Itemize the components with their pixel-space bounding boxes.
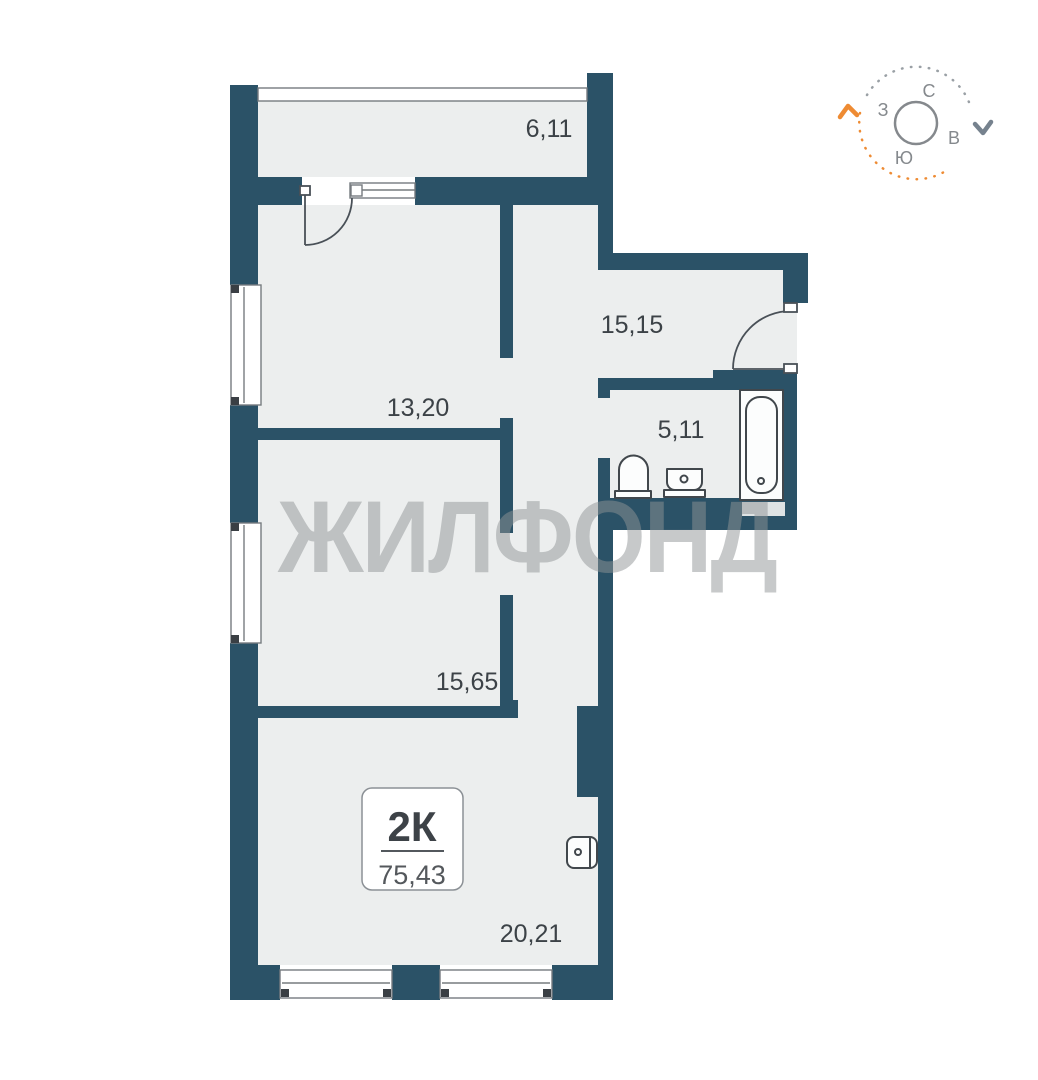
wall-divider-lower [500, 595, 513, 718]
rotate-clockwise-arrow-icon [975, 122, 991, 133]
wall-divider-upper [500, 205, 513, 358]
compass-east-label: В [948, 128, 960, 148]
compass-arc-orange [859, 113, 944, 179]
wall-top-right-segment [415, 177, 613, 205]
compass-north-label: С [923, 81, 936, 101]
rotate-counterclockwise-arrow-icon [840, 106, 857, 117]
entry-door-hinge-bottom [784, 364, 797, 373]
compass-circle [895, 102, 937, 144]
wall-top-left-segment [230, 177, 302, 205]
left-window-1 [231, 285, 261, 405]
compass-west-label: З [878, 100, 889, 120]
unit-badge: 2К 75,43 [362, 788, 463, 890]
room-label-room-2: 15,65 [436, 668, 499, 696]
unit-badge-area: 75,43 [378, 860, 446, 890]
wall-left-mid [230, 405, 258, 523]
compass-south-label: Ю [895, 148, 913, 168]
compass: С З В Ю [840, 67, 991, 179]
wall-pilaster [577, 706, 598, 797]
wall-hallway-top [613, 253, 808, 270]
room-label-living: 20,21 [500, 920, 563, 948]
wall-bottom-mid [392, 965, 440, 1000]
wall-between-rooms-2 [258, 706, 518, 718]
wall-bottom-left [230, 965, 280, 1000]
room-label-bathroom: 5,11 [658, 416, 705, 444]
wall-between-rooms-1 [258, 428, 513, 440]
electrical-panel [567, 837, 597, 868]
balcony-glazing [258, 88, 587, 101]
wall-step [598, 203, 613, 270]
entry-door-hinge-top [784, 303, 797, 312]
floor-plan-svg: 6,11 15,15 13,20 5,11 15,65 20,21 2К 75,… [0, 0, 1038, 1080]
bottom-window-2 [440, 970, 552, 998]
balcony-window [350, 183, 415, 198]
room-label-room-1: 13,20 [387, 394, 450, 422]
wall-end-cap [502, 700, 518, 718]
bottom-window-1 [280, 970, 392, 998]
floor-plan-canvas: 6,11 15,15 13,20 5,11 15,65 20,21 2К 75,… [0, 0, 1038, 1080]
unit-badge-rooms: 2К [388, 803, 437, 850]
wall-left-bottom [230, 643, 258, 1000]
balcony-door-hinge [300, 186, 310, 195]
left-window-2 [231, 523, 261, 643]
room-label-balcony: 6,11 [526, 115, 573, 143]
room-label-hallway: 15,15 [601, 311, 664, 339]
wall-bottom-right [552, 965, 613, 1000]
wall-entry-jamb-top [783, 270, 808, 303]
wall-bathroom-door-jamb-top [598, 378, 610, 398]
watermark: ЖИЛФОНД [277, 480, 777, 594]
